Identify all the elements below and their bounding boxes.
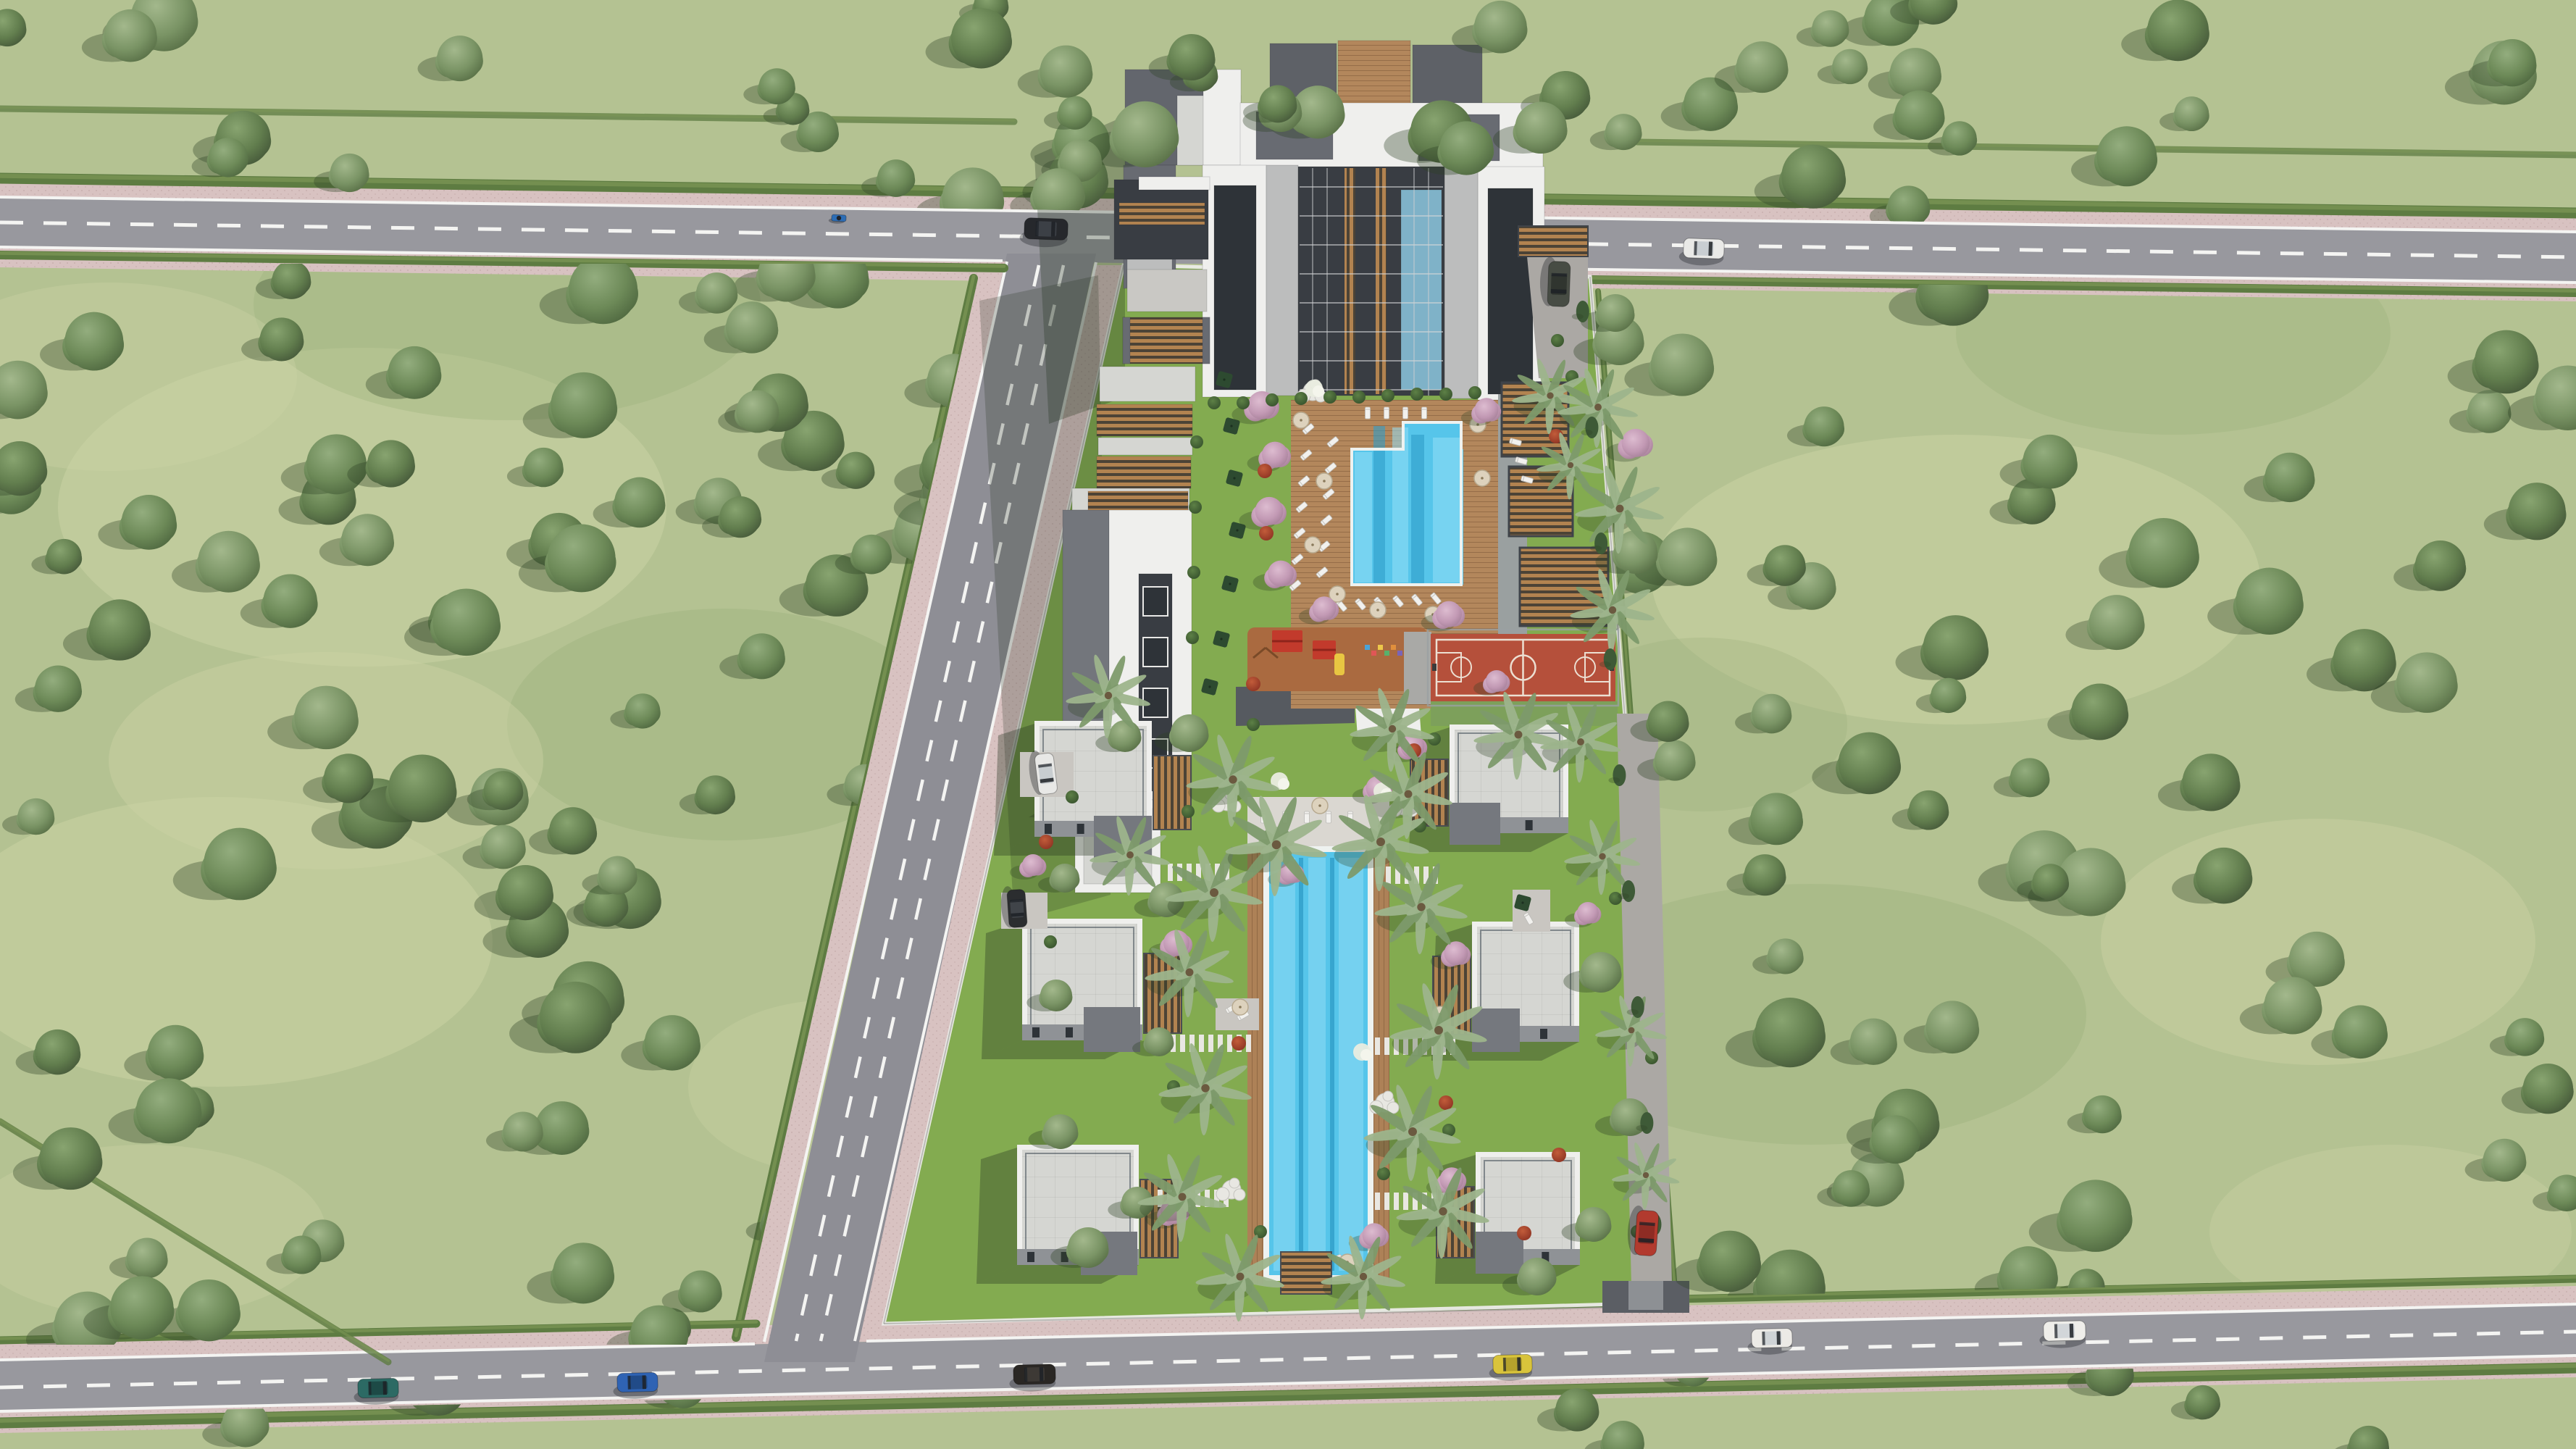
building-block xyxy=(1338,41,1410,113)
stepping-stone xyxy=(1386,867,1391,884)
palm-trunk xyxy=(1515,731,1523,739)
palm-trunk xyxy=(1577,738,1584,746)
tree-canopy xyxy=(1145,1027,1174,1056)
play-slide xyxy=(1334,653,1345,675)
pool-lane xyxy=(1411,435,1424,585)
building-block xyxy=(1444,167,1478,398)
villa-window xyxy=(1540,1029,1547,1039)
tree-canopy xyxy=(535,1101,589,1155)
tree-canopy xyxy=(136,1078,201,1143)
tree-canopy xyxy=(1259,85,1297,123)
cypress-shadow xyxy=(1627,1009,1639,1015)
car-windshield xyxy=(1040,1367,1044,1382)
shrub xyxy=(1381,389,1394,402)
basketball-hoop xyxy=(1432,664,1437,671)
cypress-shadow xyxy=(1572,314,1584,320)
shrub xyxy=(1182,805,1195,818)
hopscotch-tile xyxy=(1384,651,1389,656)
hopscotch-tile xyxy=(1397,651,1402,656)
villa-annex xyxy=(1084,1007,1140,1052)
tree-canopy xyxy=(2128,518,2199,588)
tree-canopy xyxy=(569,255,637,324)
palm-trunk xyxy=(1609,606,1616,614)
tree-canopy xyxy=(2059,1179,2132,1252)
umbrella-pole xyxy=(1323,480,1326,483)
tree-canopy xyxy=(367,440,414,487)
tree-canopy xyxy=(388,346,441,399)
building-block xyxy=(1413,45,1482,110)
cypress-shadow xyxy=(1581,430,1592,435)
terrace-block xyxy=(1127,270,1207,312)
tree-canopy xyxy=(1750,793,1802,845)
tree-canopy xyxy=(2508,483,2565,540)
pink-canopy xyxy=(1444,941,1468,965)
tree-canopy xyxy=(2264,977,2321,1034)
palm-trunk xyxy=(1434,1026,1443,1035)
palm-trunk xyxy=(1417,903,1425,911)
umbrella-pole xyxy=(1318,804,1321,807)
tree-canopy xyxy=(1699,1231,1761,1293)
car-windshield xyxy=(1708,242,1713,256)
flower-bush xyxy=(1278,778,1289,790)
terrace-block xyxy=(1097,404,1192,436)
tree-canopy xyxy=(553,1243,614,1303)
parasol-pole xyxy=(1521,901,1523,903)
shrub xyxy=(1295,392,1308,405)
tree-canopy xyxy=(148,1025,204,1081)
tree-canopy xyxy=(432,588,500,656)
tree-canopy xyxy=(2333,629,2396,691)
stepping-stone xyxy=(1384,1193,1389,1210)
pink-canopy xyxy=(1475,398,1499,422)
palm-trunk xyxy=(1376,838,1385,846)
hopscotch-tile xyxy=(1378,645,1383,650)
parasol-pole xyxy=(1233,477,1235,479)
tree-canopy xyxy=(1832,49,1867,84)
tree-canopy xyxy=(726,301,778,354)
villa-annex xyxy=(1472,1009,1520,1052)
tree-canopy xyxy=(1068,1227,1108,1268)
tree-canopy xyxy=(2506,1018,2543,1056)
tree-canopy xyxy=(1040,46,1092,98)
pool-shimmer xyxy=(1355,452,1372,582)
tree-canopy xyxy=(1043,1114,1078,1149)
lap-pool-lane xyxy=(1330,858,1334,1271)
car-blue xyxy=(613,1372,658,1399)
tree-canopy xyxy=(1871,1115,1920,1164)
parasol-pole xyxy=(1220,638,1222,640)
terrace-block xyxy=(1139,177,1210,190)
villa-annex xyxy=(1450,803,1500,845)
red-shrub xyxy=(1039,835,1053,849)
tree-canopy xyxy=(1736,41,1788,93)
tower-window xyxy=(1143,587,1168,616)
stepping-stone xyxy=(1208,1035,1213,1052)
tree-canopy xyxy=(2467,390,2511,433)
tree-canopy xyxy=(1439,121,1493,175)
tree-canopy xyxy=(679,1271,722,1313)
palm-trunk xyxy=(1439,1207,1447,1215)
palm-trunk xyxy=(1210,888,1218,897)
tree-canopy xyxy=(484,771,523,810)
villa-window xyxy=(1066,1027,1073,1037)
tree-canopy xyxy=(1926,1001,1979,1053)
playground xyxy=(1247,627,1427,691)
tree-canopy xyxy=(1109,720,1141,752)
car-windshield xyxy=(1776,1331,1781,1345)
shrub xyxy=(1377,1167,1390,1180)
red-shrub xyxy=(1552,1148,1566,1162)
car-rear-window xyxy=(368,1382,371,1395)
tree-canopy xyxy=(2196,848,2252,904)
terrace-block xyxy=(1123,317,1130,364)
tree-canopy xyxy=(127,1237,167,1278)
tree-canopy xyxy=(2010,758,2049,797)
palm-trunk xyxy=(1594,404,1602,411)
car-rear-window xyxy=(2054,1324,2058,1339)
red-shrub xyxy=(1439,1095,1453,1110)
shrub xyxy=(1247,718,1260,731)
umbrella-pole xyxy=(1481,477,1484,480)
tree-canopy xyxy=(1605,114,1642,150)
tree-canopy xyxy=(39,1127,101,1190)
stepping-stone xyxy=(1246,1035,1251,1052)
tree-canopy xyxy=(1923,615,1989,680)
cypress-shadow xyxy=(1599,661,1611,667)
tree-canopy xyxy=(2089,595,2144,650)
lap-pool-lane xyxy=(1299,858,1303,1271)
villa-window xyxy=(1526,820,1533,830)
tree-canopy xyxy=(178,1279,240,1341)
tree-canopy xyxy=(283,1236,321,1274)
tree-canopy xyxy=(35,1030,80,1074)
car-white xyxy=(1678,238,1724,266)
umbrella-pole xyxy=(1300,419,1302,422)
shrub xyxy=(1468,386,1481,399)
building-block xyxy=(1488,188,1533,394)
villa-window xyxy=(1032,1027,1040,1037)
umbrella-pole xyxy=(1239,1006,1242,1009)
villa-shadow xyxy=(982,922,1022,1059)
pink-canopy xyxy=(1313,596,1337,620)
shrub xyxy=(1410,388,1423,401)
tree-canopy xyxy=(549,807,596,854)
tree-canopy xyxy=(2183,753,2240,811)
tree-canopy xyxy=(736,391,779,433)
tree-canopy xyxy=(2475,330,2538,394)
car-windshield xyxy=(1551,289,1567,293)
lounger xyxy=(1384,407,1389,419)
tree-canopy xyxy=(498,865,553,920)
gate-opening xyxy=(1628,1281,1663,1310)
pink-canopy xyxy=(1486,670,1507,692)
tree-canopy xyxy=(2071,683,2128,740)
tree-canopy xyxy=(1112,101,1178,167)
tower-window xyxy=(1143,638,1168,667)
red-shrub xyxy=(1246,677,1260,691)
suv-black xyxy=(1019,217,1068,248)
tree-canopy xyxy=(1058,96,1092,129)
tree-canopy xyxy=(1781,145,1845,209)
building-block xyxy=(1266,165,1298,396)
tree-canopy xyxy=(17,798,54,835)
car-windshield xyxy=(1051,222,1055,237)
tree-canopy xyxy=(1655,740,1695,780)
tree-canopy xyxy=(719,496,761,538)
tree-canopy xyxy=(551,372,616,438)
tree-canopy xyxy=(89,599,150,660)
palm-trunk xyxy=(1237,1273,1245,1281)
pink-canopy xyxy=(1577,902,1599,924)
shrub xyxy=(1186,631,1199,644)
palm-trunk xyxy=(1105,692,1112,699)
tree-canopy xyxy=(2488,39,2535,86)
tree-canopy xyxy=(110,1276,173,1339)
scene-canvas xyxy=(0,0,2576,1449)
villa-window xyxy=(1045,824,1052,834)
flower-bush xyxy=(1313,385,1324,397)
car-brown xyxy=(1009,1364,1056,1392)
red-shrub xyxy=(1259,526,1274,540)
tree-canopy xyxy=(614,477,665,528)
tree-canopy xyxy=(2236,568,2302,635)
palm-trunk xyxy=(1599,853,1605,859)
palm-trunk xyxy=(1389,725,1396,732)
tree-canopy xyxy=(35,665,81,711)
tree-canopy xyxy=(1804,406,1844,446)
tree-canopy xyxy=(1474,1,1527,54)
palm-trunk xyxy=(1179,1193,1187,1201)
tree-canopy xyxy=(204,828,276,901)
tower-block xyxy=(1088,491,1188,510)
tree-canopy xyxy=(341,514,393,566)
lounger xyxy=(1422,407,1427,419)
tree-canopy xyxy=(1894,91,1944,141)
stepping-stone xyxy=(1375,1193,1380,1210)
lounger xyxy=(1305,811,1310,823)
tree-canopy xyxy=(877,159,915,197)
shrub xyxy=(1187,566,1200,579)
stepping-stone xyxy=(1384,1037,1389,1055)
tree-canopy xyxy=(1768,938,1803,974)
shrub xyxy=(1237,396,1250,409)
building-block xyxy=(1214,185,1256,390)
palm-trunk xyxy=(1547,392,1553,398)
cypress-shadow xyxy=(1636,1125,1647,1131)
umbrella-pole xyxy=(1336,593,1339,596)
stepping-stone xyxy=(1375,1037,1380,1055)
shrub xyxy=(1551,334,1564,347)
cypress-shadow xyxy=(1618,893,1629,899)
terrace-block xyxy=(1098,438,1192,455)
red-shrub xyxy=(1258,464,1272,478)
pool-shimmer xyxy=(1433,438,1460,582)
aerial-render: Aerial 3D render of a gated residential … xyxy=(0,0,2576,1449)
tree-canopy xyxy=(1942,121,1976,155)
red-shrub xyxy=(1231,1036,1246,1051)
stepping-stone xyxy=(1180,1035,1185,1052)
tree-canopy xyxy=(852,535,892,575)
palm-trunk xyxy=(1272,840,1281,849)
flower-bush xyxy=(1360,1049,1372,1061)
tree-canopy xyxy=(1168,34,1215,80)
parasol-pole xyxy=(1208,685,1210,688)
tree-canopy xyxy=(503,1111,543,1151)
villa-annex xyxy=(1476,1232,1523,1274)
shrub xyxy=(1044,935,1057,948)
cypress-shadow xyxy=(1590,546,1602,551)
tree-canopy xyxy=(2334,1005,2388,1058)
car-teal xyxy=(354,1378,399,1405)
stepping-stone xyxy=(1403,1193,1408,1210)
car-windshield xyxy=(382,1381,387,1395)
palm-trunk xyxy=(1628,1027,1635,1034)
rock xyxy=(1216,1187,1229,1200)
villa-pergola xyxy=(1153,756,1191,830)
tree-canopy xyxy=(2023,435,2077,489)
shrub xyxy=(1323,391,1337,404)
tree-canopy xyxy=(759,68,795,104)
tree-canopy xyxy=(294,686,358,750)
tree-canopy xyxy=(2265,453,2314,502)
tree-canopy xyxy=(263,574,317,627)
tree-canopy xyxy=(739,633,785,679)
pink-canopy xyxy=(1268,561,1294,587)
tree-canopy xyxy=(1518,1258,1556,1295)
lap-pool-deck xyxy=(1247,846,1263,1284)
palm-trunk xyxy=(1360,1273,1367,1280)
car-white-2 xyxy=(1747,1328,1793,1355)
stepping-stone xyxy=(1168,864,1173,881)
terrace-block xyxy=(1097,456,1191,488)
car-rear-window xyxy=(1024,1368,1028,1382)
pool-shimmer xyxy=(1392,427,1408,582)
tree-canopy xyxy=(696,775,735,814)
tree-canopy xyxy=(1812,10,1849,47)
tree-canopy xyxy=(198,531,259,593)
tree-canopy xyxy=(1752,694,1791,734)
car-rear-window xyxy=(1552,273,1568,277)
car-yellow xyxy=(1489,1354,1533,1381)
tree-canopy xyxy=(1171,714,1208,752)
tree-canopy xyxy=(260,317,304,361)
lap-pool-shimmer xyxy=(1274,858,1295,1271)
tree-canopy xyxy=(951,8,1011,68)
rock xyxy=(1229,1178,1239,1188)
shrub xyxy=(1066,790,1079,803)
tree-canopy xyxy=(548,525,616,593)
tree-canopy xyxy=(1597,294,1634,332)
rock xyxy=(1383,1091,1393,1101)
shrub xyxy=(1208,396,1221,409)
shrub xyxy=(1266,393,1279,406)
lounger xyxy=(1326,811,1331,823)
tree-canopy xyxy=(1744,854,1786,895)
lounger xyxy=(1403,407,1408,419)
palm-trunk xyxy=(1616,505,1624,513)
rock xyxy=(1234,1189,1245,1200)
tree-canopy xyxy=(1658,527,1716,585)
tree-canopy xyxy=(1850,1019,1897,1065)
building-block xyxy=(1401,190,1442,390)
palm-trunk xyxy=(1186,969,1194,977)
tree-canopy xyxy=(388,754,456,822)
lounger xyxy=(1366,407,1371,419)
car-rear-window xyxy=(1503,1358,1506,1371)
tree-canopy xyxy=(645,1015,700,1070)
lap-pool-shimmer xyxy=(1339,858,1363,1271)
parasol-pole xyxy=(1236,529,1238,531)
shrub xyxy=(1190,435,1203,448)
car-windshield xyxy=(642,1375,646,1389)
tree-canopy xyxy=(1909,790,1949,830)
umbrella-pole xyxy=(1376,609,1379,611)
tree-canopy xyxy=(1555,1388,1599,1432)
tree-canopy xyxy=(122,495,177,550)
pink-canopy xyxy=(1255,497,1284,525)
tree-canopy xyxy=(272,261,311,299)
shrub xyxy=(1352,391,1366,404)
stepping-stone xyxy=(1394,1193,1399,1210)
tree-canopy xyxy=(437,36,482,81)
tree-canopy xyxy=(209,138,248,177)
palm-trunk xyxy=(1643,1172,1649,1178)
car-white-3 xyxy=(2039,1321,2086,1349)
lap-pool-shimmer xyxy=(1308,858,1326,1271)
terrace-block xyxy=(1119,203,1205,225)
villa-window xyxy=(1077,824,1084,834)
stepping-stone xyxy=(1199,1035,1204,1052)
cypress-shadow xyxy=(1608,777,1620,783)
tree-canopy xyxy=(2396,652,2457,713)
tree-canopy xyxy=(2483,1139,2526,1182)
parasol-pole xyxy=(1229,582,1231,585)
tree-canopy xyxy=(625,693,660,728)
tree-canopy xyxy=(2083,1095,2121,1133)
tree-canopy xyxy=(1576,1207,1611,1242)
tree-canopy xyxy=(524,448,563,487)
tree-canopy xyxy=(2147,0,2209,61)
stepping-stone xyxy=(1227,1035,1232,1052)
tree-canopy xyxy=(2415,540,2466,591)
parasol-pole xyxy=(1223,378,1225,380)
tree-canopy xyxy=(1040,980,1072,1011)
pink-canopy xyxy=(1022,854,1044,876)
tree-canopy xyxy=(1648,701,1689,742)
tree-canopy xyxy=(540,982,611,1053)
tree-canopy xyxy=(1839,732,1901,795)
palm-trunk xyxy=(1405,790,1413,798)
tree-canopy xyxy=(104,9,157,62)
tree-canopy xyxy=(2186,1385,2220,1419)
tree-canopy xyxy=(1050,864,1079,893)
tree-canopy xyxy=(1931,678,1965,713)
car-rear-window xyxy=(1762,1332,1765,1345)
villa-shadow xyxy=(977,1148,1017,1284)
tree-canopy xyxy=(837,452,874,489)
palm-trunk xyxy=(1568,462,1573,468)
tree-canopy xyxy=(1651,333,1713,396)
tree-canopy xyxy=(1515,102,1567,154)
terrace-block xyxy=(1100,367,1195,401)
tree-canopy xyxy=(2033,864,2069,900)
car-rear-window xyxy=(1035,221,1039,236)
tree-canopy xyxy=(64,312,123,371)
tree-canopy xyxy=(1833,1170,1870,1207)
hopscotch-tile xyxy=(1365,645,1370,650)
car-rear-window xyxy=(1694,241,1697,256)
red-shrub xyxy=(1517,1226,1531,1240)
